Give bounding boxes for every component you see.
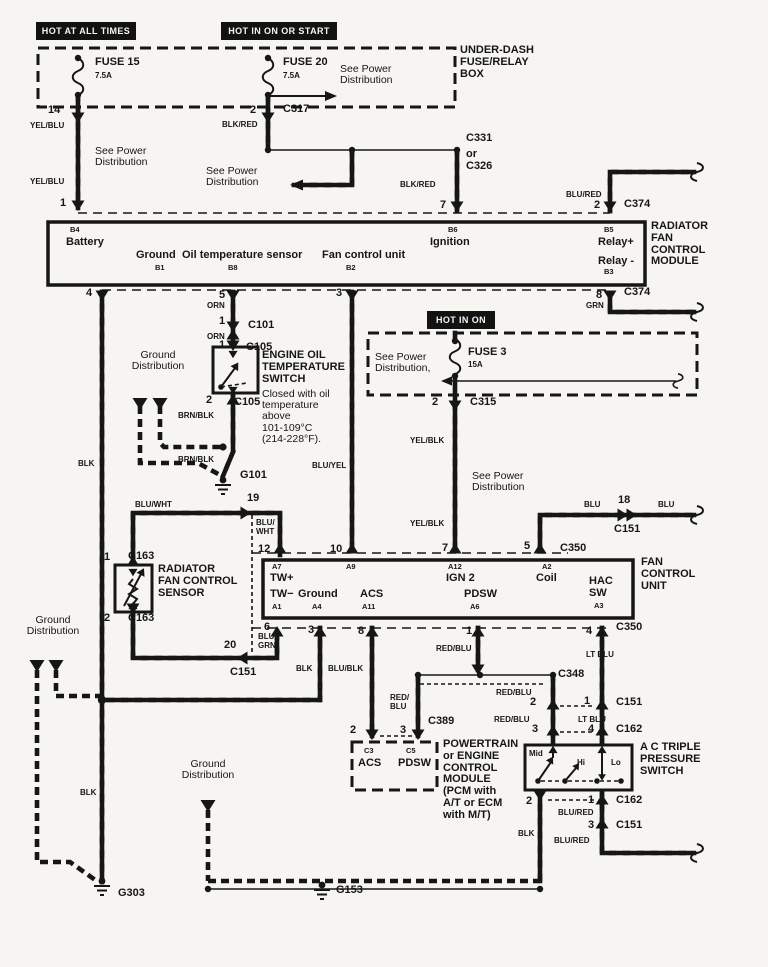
label-pin-8-c374: 8 (596, 290, 602, 302)
label-pin-4-ltblu: 4 (586, 626, 592, 638)
label-b4: B4 (70, 226, 80, 234)
label-brn-blk-2: BRN/BLK (178, 456, 214, 465)
label-ground-distribution-3: Ground Distribution (168, 759, 248, 781)
label-ignition: Ignition (430, 237, 470, 249)
label-pin-12: 12 (258, 544, 270, 556)
label-fan-control-unit: FAN CONTROL UNIT (641, 557, 695, 592)
label-switch-note: Closed with oil temperature above 101-10… (262, 389, 330, 445)
label-blk-red-2: BLK/RED (400, 181, 436, 190)
label-pin-20: 20 (224, 640, 236, 652)
label-c374-b: C374 (624, 287, 650, 299)
label-blu-wht-2: BLU/ WHT (256, 519, 275, 536)
label-ground-distribution-2: Ground Distribution (13, 615, 93, 637)
label-relay-plus: Relay+ (598, 237, 634, 249)
label-pin-3-pcm: 3 (400, 725, 406, 737)
label-fuse-15-rating: 7.5A (95, 72, 112, 81)
label-blk-1: BLK (296, 665, 312, 674)
label-c5: C5 (406, 747, 416, 755)
label-pin-3-top: 3 (336, 288, 342, 300)
label-blu-grn-1: BLU/ GRN (258, 633, 277, 650)
g303-ground-symbol (94, 878, 110, 895)
label-yel-blu-2: YEL/BLU (30, 178, 64, 187)
label-hi: Hi (577, 759, 585, 768)
label-blk-3: BLK (78, 460, 94, 469)
label-a7: A7 (272, 563, 282, 571)
label-red-blu-1: RED/BLU (436, 645, 472, 654)
symbols (30, 55, 624, 899)
label-b5: B5 (604, 226, 614, 234)
label-a6: A6 (470, 603, 480, 611)
label-under-dash-box: UNDER-DASH FUSE/RELAY BOX (460, 45, 534, 80)
label-ground-distribution-1: Ground Distribution (124, 350, 192, 372)
label-c151-d: C151 (616, 820, 642, 832)
label-see-power-dist-5: See Power Distribution (472, 471, 525, 493)
label-fuse-20: FUSE 20 (283, 57, 328, 69)
label-pin-5-c350: 5 (524, 541, 530, 553)
label-radiator-fan-control-sensor: RADIATOR FAN CONTROL SENSOR (158, 564, 237, 599)
label-pin-1-left: 1 (60, 198, 66, 210)
label-a2: A2 (542, 563, 552, 571)
label-c3: C3 (364, 747, 374, 755)
label-pin-10: 10 (330, 544, 342, 556)
label-a11: A11 (362, 603, 375, 611)
label-see-power-dist-3: See Power Distribution (206, 166, 259, 188)
label-pin-8-acs: 8 (358, 626, 364, 638)
label-pin-7-c350: 7 (442, 543, 448, 555)
label-c162-b: C162 (616, 795, 642, 807)
label-pdsw-a6: PDSW (464, 589, 497, 601)
label-c151-a: C151 (614, 524, 640, 536)
label-oil-temperature-sensor: Oil temperature sensor (182, 250, 302, 262)
label-red-blu-4: RED/BLU (494, 716, 530, 725)
label-a12: A12 (448, 563, 462, 571)
label-pin-18: 18 (618, 495, 630, 507)
label-blu-b: BLU (658, 501, 674, 510)
header-hot-at-all-times: HOT AT ALL TIMES (36, 22, 136, 40)
label-pin-1-c162: 1 (588, 795, 594, 807)
label-c315: C315 (470, 397, 496, 409)
label-yel-blk-2: YEL/BLK (410, 520, 444, 529)
label-c331: C331 (466, 133, 492, 145)
label-blk-4: BLK (80, 789, 96, 798)
label-pin-2-c317: 2 (250, 105, 256, 117)
label-a9: A9 (346, 563, 356, 571)
label-red-blu-3: RED/BLU (496, 689, 532, 698)
label-acs-a11: ACS (360, 589, 383, 601)
label-pin-2-blk: 2 (526, 796, 532, 808)
label-engine-oil-temp-switch: ENGINE OIL TEMPERATURE SWITCH (262, 350, 345, 385)
label-b8: B8 (228, 264, 238, 272)
label-fuse-3: FUSE 3 (468, 347, 507, 359)
label-blk-2: BLK (518, 830, 534, 839)
label-fuse-20-rating: 7.5A (283, 72, 300, 81)
label-c151-c: C151 (616, 697, 642, 709)
label-blu-wht-1: BLU/WHT (135, 501, 172, 510)
label-pcm-label: POWERTRAIN or ENGINE CONTROL MODULE (PCM… (443, 739, 518, 821)
label-pin-3-c162: 3 (532, 724, 538, 736)
label-pin-4-c162: 4 (588, 724, 594, 736)
label-tw-minus: TW− (270, 589, 294, 601)
label-lt-blu-1: LT BLU (586, 651, 614, 660)
label-b3: B3 (604, 268, 614, 276)
label-pin-1-c163: 1 (104, 552, 110, 564)
label-blu-red-2: BLU/RED (558, 809, 594, 818)
label-c162-a: C162 (616, 724, 642, 736)
fan-sensor-symbol (124, 566, 148, 609)
label-b1: B1 (155, 264, 165, 272)
label-a4: A4 (312, 603, 322, 611)
label-red-blu-2: RED/ BLU (390, 694, 409, 711)
label-pin-1-c151: 1 (584, 696, 590, 708)
label-pin-1-c105: 1 (219, 340, 225, 352)
label-pin-4: 4 (86, 288, 92, 300)
label-c317: C317 (283, 104, 309, 116)
label-see-power-dist-1: See Power Distribution (340, 64, 393, 86)
label-blu-red-3: BLU/RED (554, 837, 590, 846)
label-pin-2-pcm: 2 (350, 725, 356, 737)
label-c350-b: C350 (616, 622, 642, 634)
g101-ground-symbol (215, 477, 231, 494)
label-see-power-dist-4: See Power Distribution, (375, 352, 430, 374)
label-yel-blu-1: YEL/BLU (30, 122, 64, 131)
label-radiator-fan-control-module: RADIATOR FAN CONTROL MODULE (651, 221, 708, 268)
g153-ground-symbol (314, 882, 330, 899)
label-blk-red-1: BLK/RED (222, 121, 258, 130)
label-tw-plus: TW+ (270, 573, 294, 585)
label-hac-sw: HAC SW (589, 576, 613, 600)
label-pin-3-gnd: 3 (308, 625, 314, 637)
label-pin-3-c151: 3 (588, 820, 594, 832)
label-pin-2-c163: 2 (104, 613, 110, 625)
label-c151-b: C151 (230, 667, 256, 679)
label-fuse-3-rating: 15A (468, 361, 483, 370)
label-orn-1: ORN (207, 302, 225, 311)
label-c374-a: C374 (624, 199, 650, 211)
label-pin-2-c105: 2 (206, 395, 212, 407)
label-relay-minus: Relay - (598, 256, 634, 268)
label-c163-a: C163 (128, 551, 154, 563)
label-g303: G303 (118, 888, 145, 900)
label-pin-1-c101: 1 (219, 316, 225, 328)
label-b6: B6 (448, 226, 458, 234)
header-hot-in-on-or-start: HOT IN ON OR START (221, 22, 337, 40)
label-c350-a: C350 (560, 543, 586, 555)
label-fan-control-unit-pin: Fan control unit (322, 250, 405, 262)
label-pin-19: 19 (247, 493, 259, 505)
label-blu-a: BLU (584, 501, 600, 510)
label-brn-blk-1: BRN/BLK (178, 412, 214, 421)
label-fuse-15: FUSE 15 (95, 57, 140, 69)
label-g153: G153 (336, 885, 363, 897)
label-pin-2-c374: 2 (594, 200, 600, 212)
label-ground-b1: Ground (136, 250, 176, 262)
label-blu-blk: BLU/BLK (328, 665, 363, 674)
label-blu-yel: BLU/YEL (312, 462, 346, 471)
oil-temp-switch-symbol (218, 351, 247, 394)
label-c101: C101 (248, 320, 274, 332)
label-ground-a4: Ground (298, 589, 338, 601)
label-mid: Mid (529, 750, 543, 759)
wiring-diagram-page: HOT AT ALL TIMESHOT IN ON OR STARTHOT IN… (0, 0, 768, 967)
label-lo: Lo (611, 759, 621, 768)
label-ign-2: IGN 2 (446, 573, 475, 585)
label-coil: Coil (536, 573, 557, 585)
label-pin-1-pdsw: 1 (466, 626, 472, 638)
label-c348: C348 (558, 669, 584, 681)
label-g101: G101 (240, 470, 267, 482)
label-b2: B2 (346, 264, 356, 272)
header-hot-in-on: HOT IN ON (427, 311, 495, 329)
label-pin-7-top: 7 (440, 200, 446, 212)
label-battery: Battery (66, 237, 104, 249)
label-yel-blk-1: YEL/BLK (410, 437, 444, 446)
label-grn-1: GRN (586, 302, 604, 311)
label-a3: A3 (594, 602, 604, 610)
label-c105-b: C105 (234, 397, 260, 409)
label-or-c326: or C326 (466, 149, 492, 173)
label-acs-pcm: ACS (358, 758, 381, 770)
label-pin-2-c151: 2 (530, 697, 536, 709)
label-c389: C389 (428, 716, 454, 728)
label-c163-b: C163 (128, 613, 154, 625)
label-pin-5: 5 (219, 290, 225, 302)
label-pdsw-pcm: PDSW (398, 758, 431, 770)
label-see-power-dist-2: See Power Distribution (95, 146, 148, 168)
label-pin-14: 14 (48, 105, 60, 117)
label-ac-triple-pressure-switch: A C TRIPLE PRESSURE SWITCH (640, 742, 701, 777)
label-pin-2-c315: 2 (432, 397, 438, 409)
label-a1: A1 (272, 603, 282, 611)
